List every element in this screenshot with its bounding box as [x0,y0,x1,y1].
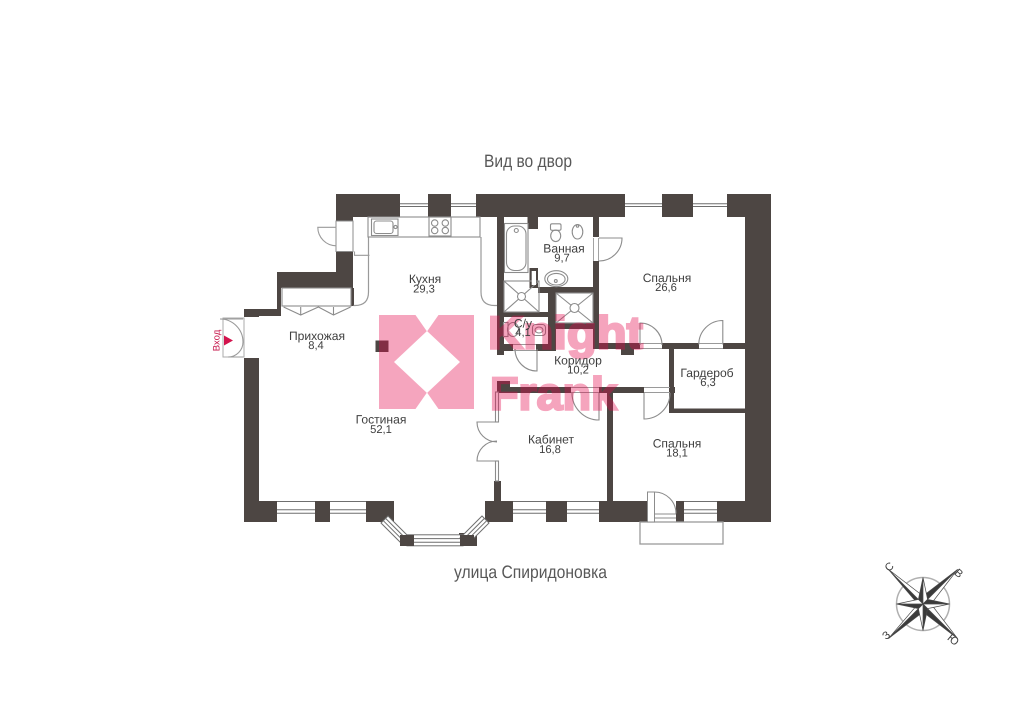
svg-text:26,6: 26,6 [655,282,677,294]
svg-text:Knight: Knight [488,307,643,359]
svg-text:8,4: 8,4 [308,340,324,352]
svg-text:29,3: 29,3 [413,284,435,296]
svg-text:4,1: 4,1 [515,327,531,339]
svg-text:10,2: 10,2 [567,365,589,377]
svg-text:9,7: 9,7 [554,253,570,265]
svg-text:Frank: Frank [490,368,617,420]
svg-text:16,8: 16,8 [539,444,561,456]
svg-text:52,1: 52,1 [370,424,392,436]
svg-text:Вид во двор: Вид во двор [484,151,572,171]
svg-text:18,1: 18,1 [666,448,688,460]
svg-text:6,3: 6,3 [700,377,716,389]
svg-text:улица Спиридоновка: улица Спиридоновка [454,562,608,582]
svg-text:Вход: Вход [212,329,223,351]
